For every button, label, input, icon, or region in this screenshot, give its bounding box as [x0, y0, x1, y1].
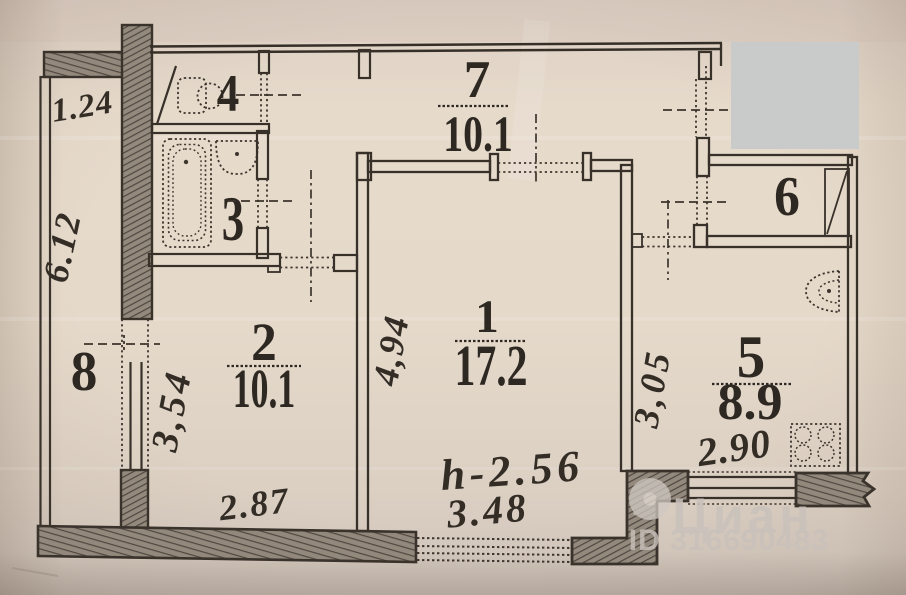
svg-text:4: 4: [217, 64, 240, 123]
svg-text:3.48: 3.48: [444, 485, 531, 537]
svg-text:10.1: 10.1: [443, 105, 513, 162]
svg-text:17.2: 17.2: [454, 333, 527, 397]
svg-text:8: 8: [71, 340, 98, 403]
svg-text:3: 3: [222, 183, 244, 254]
svg-text:10.1: 10.1: [233, 360, 296, 420]
svg-text:7: 7: [464, 51, 491, 109]
svg-text:6: 6: [774, 165, 800, 227]
svg-text:ID 316690483: ID 316690483: [629, 524, 830, 557]
